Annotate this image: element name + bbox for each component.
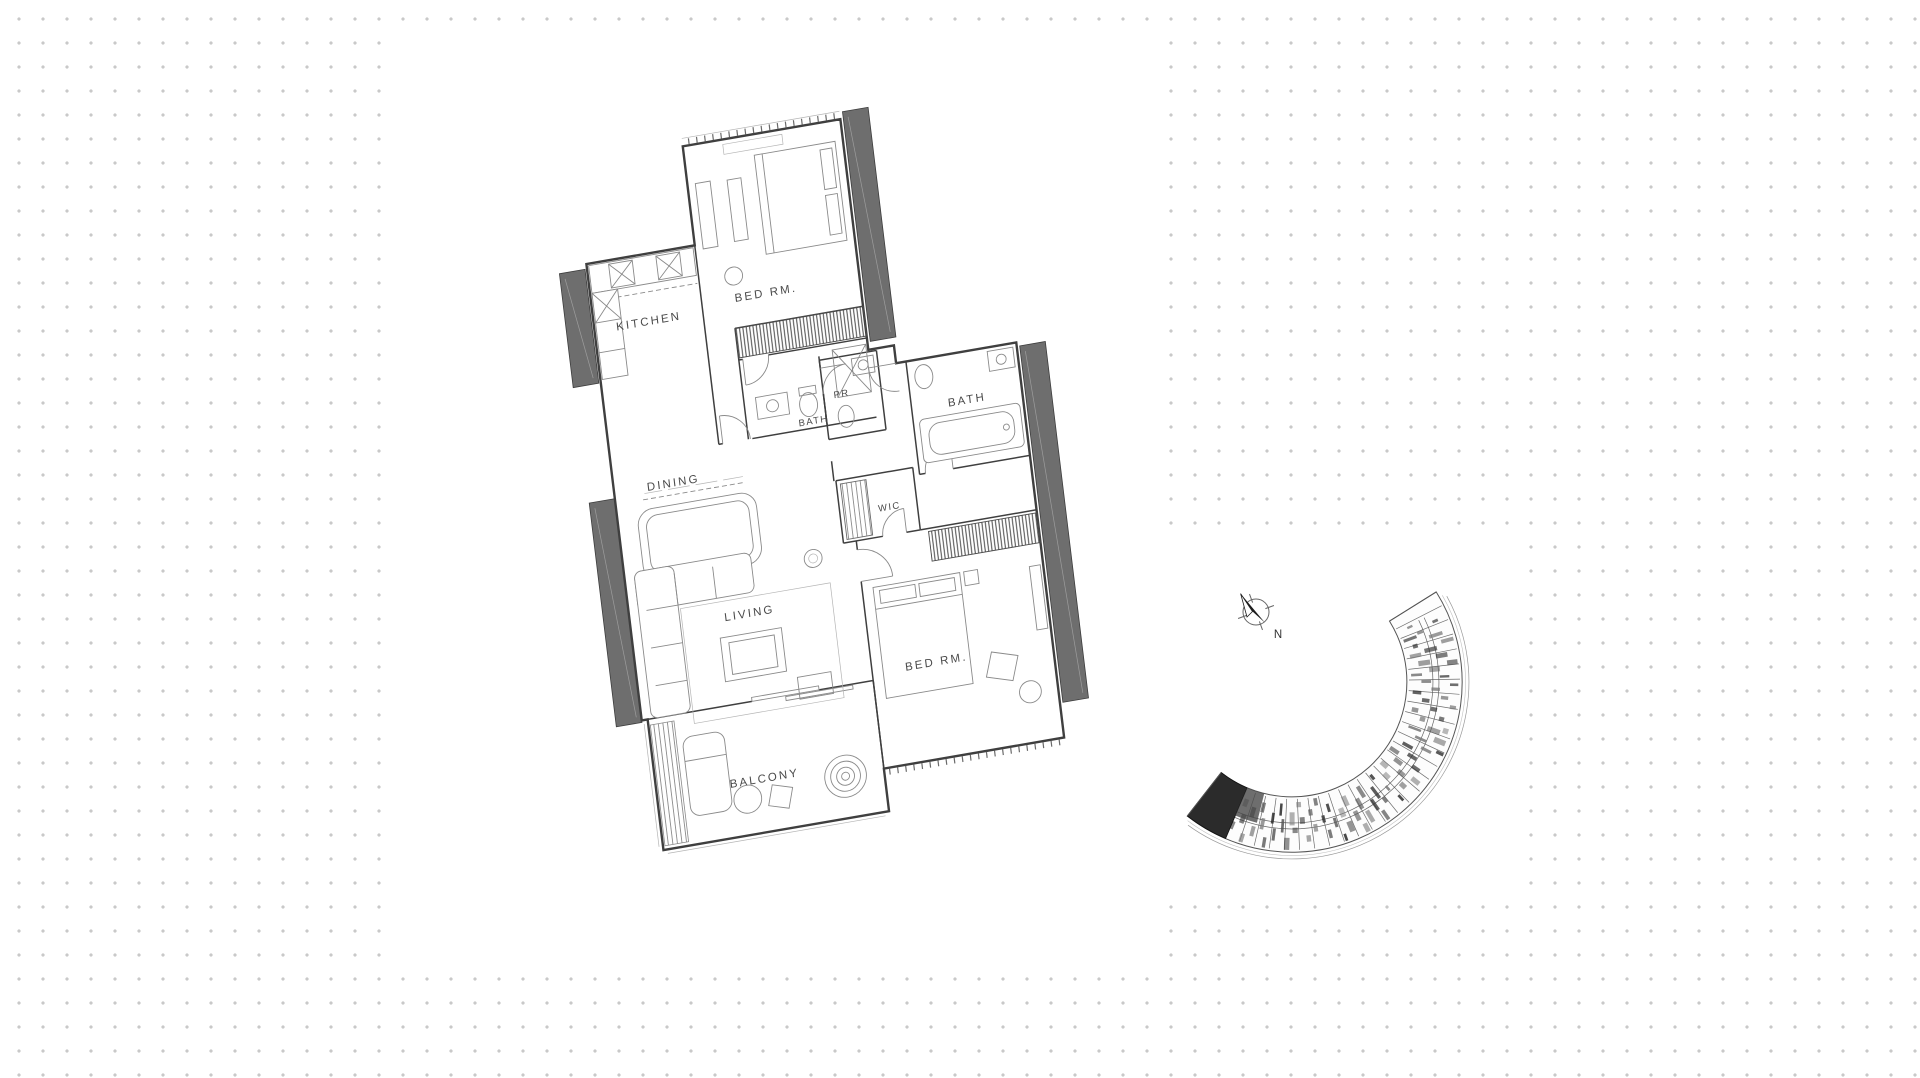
living-furniture	[634, 539, 844, 730]
keyplan-unit-texture	[1323, 815, 1325, 822]
wardrobe-bedroom-top	[735, 306, 867, 358]
keyplan-unit-texture	[1262, 803, 1264, 813]
keyplan-unit-texture	[1422, 700, 1429, 701]
side-table	[803, 548, 823, 569]
bathtub	[919, 403, 1025, 464]
sink	[755, 392, 789, 419]
keyplan-unit-texture	[1240, 834, 1243, 842]
keyplan-unit-texture	[1417, 631, 1423, 633]
room-label-bath-top: BATH	[798, 413, 829, 429]
bedroom-top-furniture	[691, 125, 850, 289]
keyplan-unit-texture	[1309, 835, 1310, 841]
keyplan-unit-texture	[1263, 837, 1265, 847]
keyplan-unit-texture	[1310, 809, 1311, 815]
room-label-kitchen: KITCHEN	[616, 310, 682, 333]
wic-shelving	[840, 480, 872, 540]
dresser	[695, 181, 718, 249]
keyplan-unit-texture	[1302, 817, 1303, 824]
keyplan-unit-texture	[1420, 718, 1425, 720]
room-label-bedroom-top: BED RM.	[734, 282, 798, 305]
north-compass: N	[1238, 594, 1282, 641]
floor-plan-drawing: BED RM. BATH KITCHEN DINING LIVING PR BA…	[0, 0, 1920, 1078]
keyplan-unit-texture	[1439, 719, 1444, 720]
apartment-unit-plan: BED RM. BATH KITCHEN DINING LIVING PR BA…	[546, 81, 1098, 860]
room-label-powder-room: PR	[833, 388, 850, 402]
room-label-balcony: BALCONY	[729, 767, 800, 791]
keyplan-unit-texture	[1447, 662, 1457, 663]
room-label-wic: WIC	[878, 500, 902, 515]
keyplan-unit-texture	[1431, 709, 1437, 710]
balcony-slider-door	[752, 680, 854, 706]
keyplan-unit-texture	[1273, 828, 1275, 840]
toilet	[914, 363, 935, 390]
keyplan-unit-texture	[1413, 692, 1422, 693]
keyplan-unit-texture	[1272, 813, 1274, 824]
room-label-dining: DINING	[646, 473, 700, 494]
lounge-chair	[682, 731, 733, 817]
toilet	[798, 391, 819, 418]
north-label: N	[1274, 629, 1282, 641]
nightstand	[964, 570, 979, 586]
bedroom-master-furniture	[873, 559, 1056, 727]
keyplan-unit-texture	[1384, 774, 1389, 779]
keyplan-unit-texture	[1251, 826, 1254, 836]
keyplan-unit-texture	[1261, 818, 1263, 829]
keyplan-unit-texture	[1413, 645, 1418, 646]
keyplan-unit-texture	[1410, 655, 1421, 657]
bed	[873, 573, 973, 699]
keyplan-unit-texture	[1443, 730, 1448, 732]
keyplan-unit-texture	[1411, 675, 1422, 676]
bath-top-fixtures	[751, 344, 873, 425]
side-table	[766, 781, 795, 811]
lamp	[724, 266, 744, 287]
keyplan-unit-texture	[1401, 783, 1406, 788]
keyplan-unit-texture	[1412, 709, 1418, 710]
keyplan-unit-texture	[1450, 707, 1456, 708]
keyplan-unit-texture	[1425, 648, 1437, 651]
keyplan-unit-texture	[1341, 808, 1344, 817]
armchair	[984, 648, 1021, 685]
ottoman	[797, 672, 833, 700]
keyplan-unit-texture	[1315, 824, 1316, 832]
keyplan-unit-texture	[1329, 830, 1331, 838]
keyplan-unit-texture	[1315, 798, 1316, 805]
keyplan-unit-texture	[1418, 662, 1430, 664]
toilet	[837, 404, 855, 429]
kitchen-fittings	[589, 248, 707, 380]
sink	[987, 347, 1015, 371]
wardrobe-bedroom-master	[929, 513, 1041, 561]
keyplan-unit-texture	[1429, 669, 1440, 670]
keyplan-unit-texture	[1349, 821, 1353, 831]
floor-plan-page: { "theme": { "dot": "#c9c9c9", "wall": "…	[0, 0, 1920, 1078]
keyplan-unit-texture	[1282, 819, 1283, 832]
keyplan-unit-texture	[1441, 698, 1448, 699]
building-key-plan	[1187, 592, 1469, 859]
keyplan-unit-texture	[1436, 654, 1448, 656]
keyplan-unit-texture	[1281, 804, 1282, 816]
room-label-bath-master: BATH	[947, 391, 986, 409]
balcony-furniture	[682, 707, 869, 825]
spiral-table	[822, 752, 868, 801]
pouf	[1018, 679, 1042, 705]
room-label-living: LIVING	[724, 604, 776, 625]
bench	[727, 178, 748, 242]
